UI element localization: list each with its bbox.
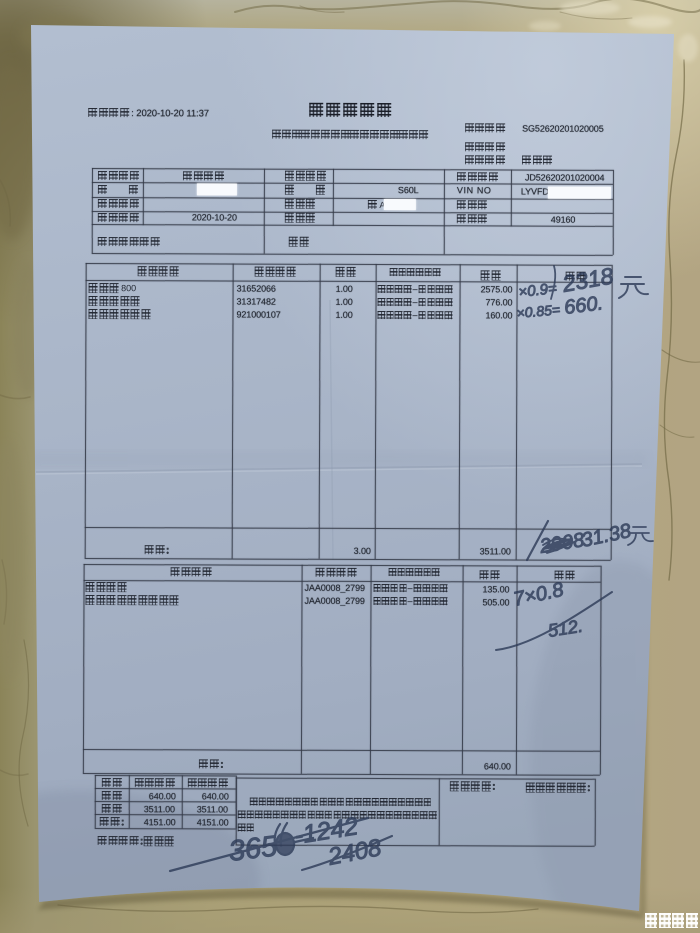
svg-text:2318: 2318 <box>559 262 615 297</box>
svg-text:512.: 512. <box>546 616 584 641</box>
svg-text:660.: 660. <box>563 292 604 319</box>
svg-text:×0.85=: ×0.85= <box>516 301 561 321</box>
svg-text:31.38: 31.38 <box>579 520 633 552</box>
svg-text:7×0.8: 7×0.8 <box>511 579 565 611</box>
